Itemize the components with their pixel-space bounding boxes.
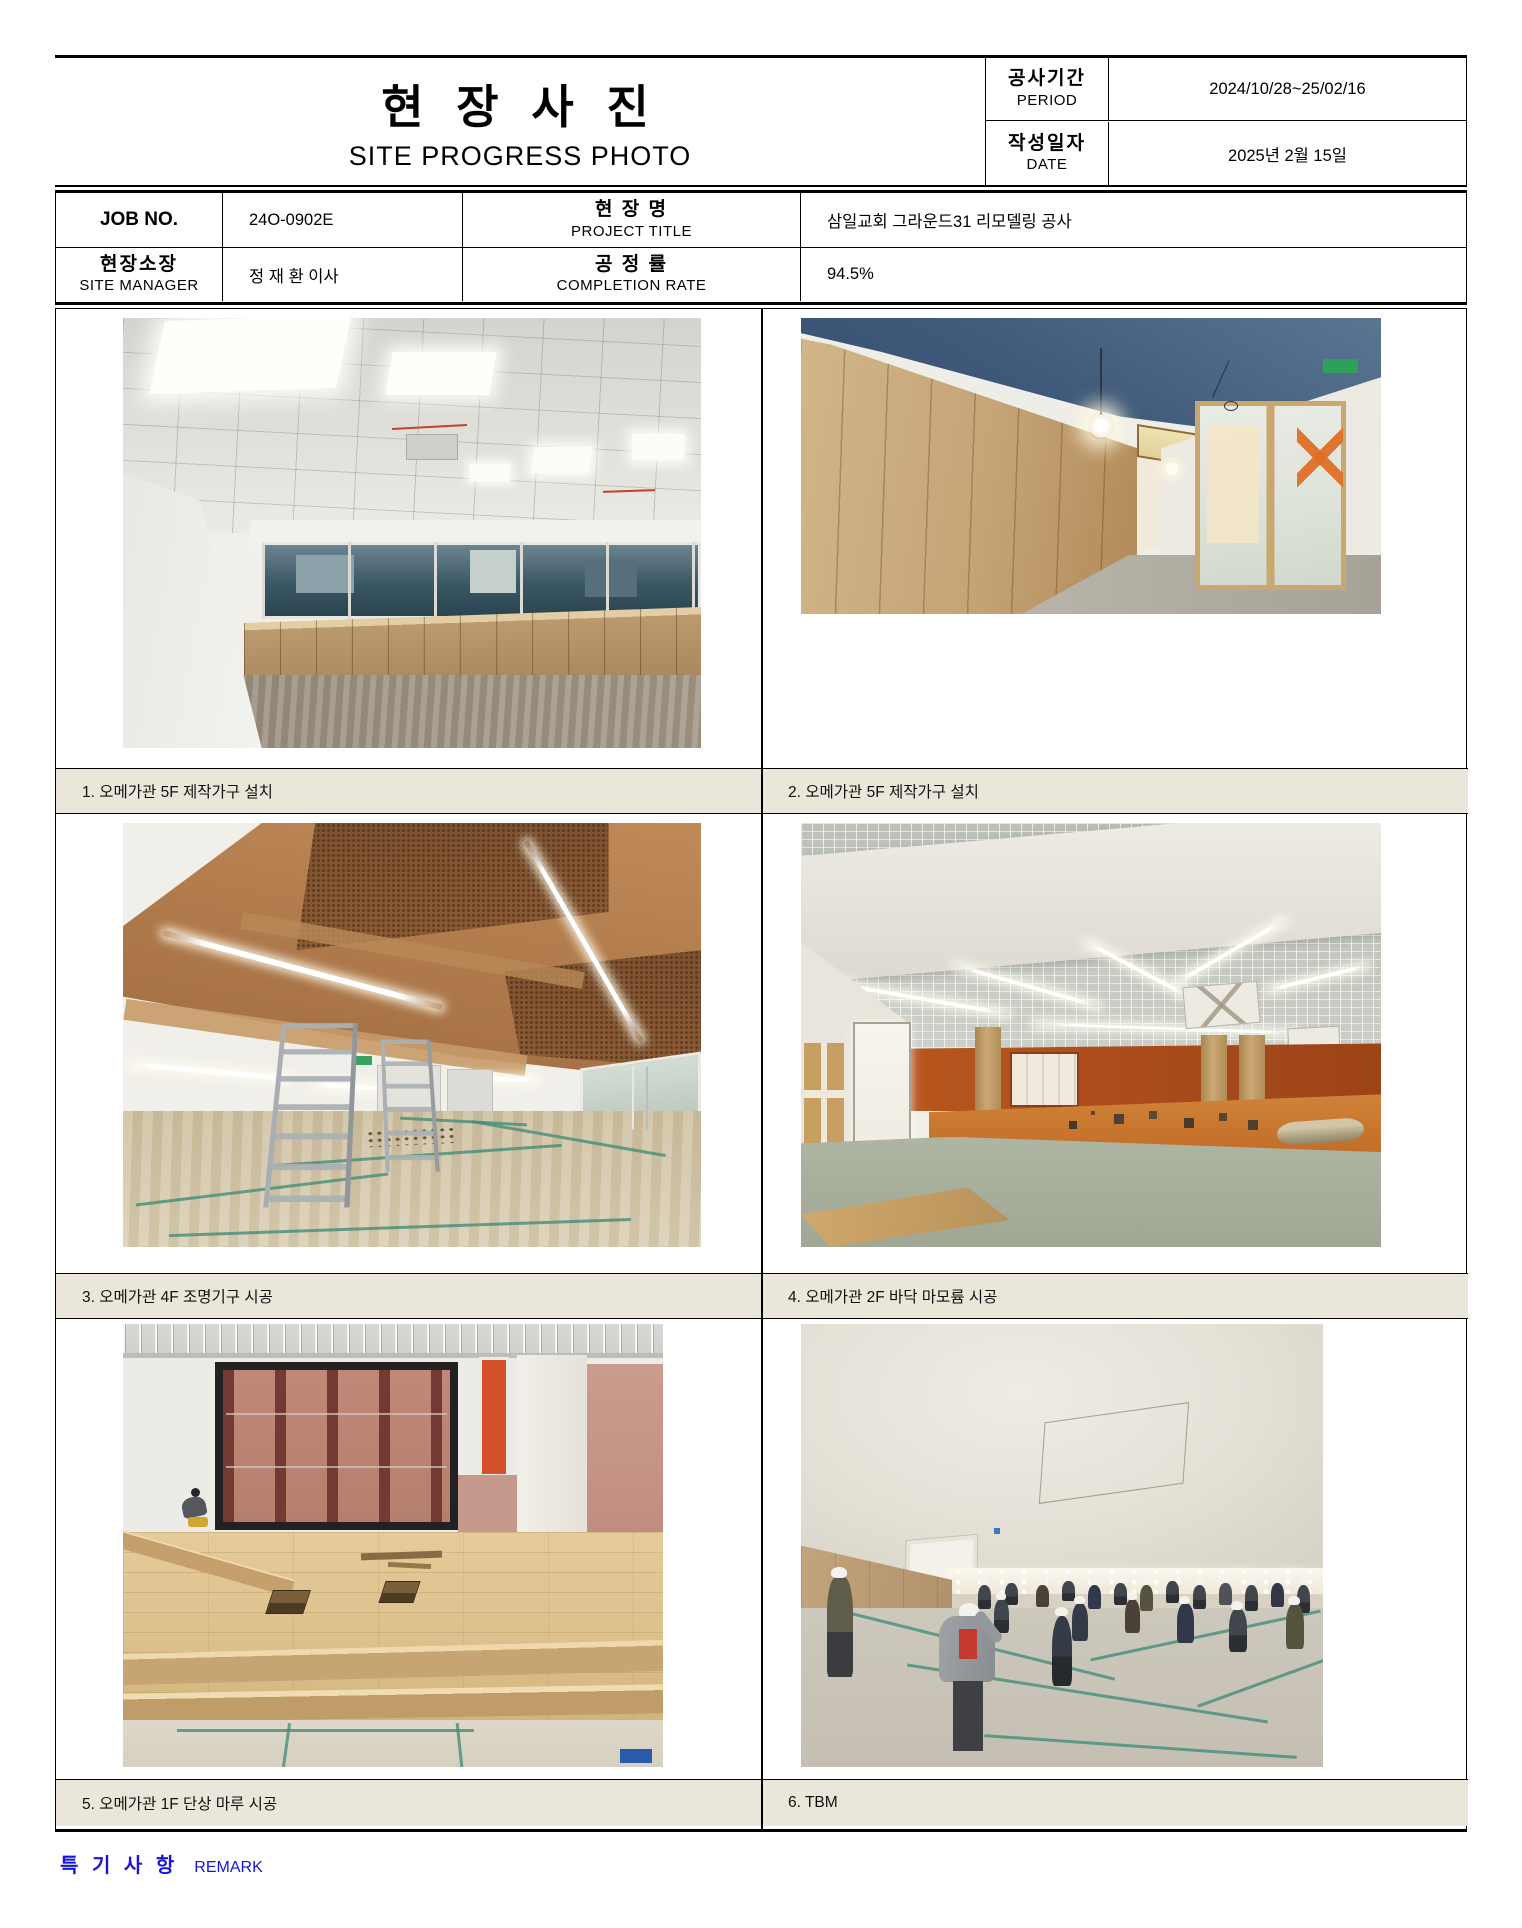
photo1-window-mullions [262,542,701,619]
photo-caption-3: 3. 오메가관 4F 조명기구 시공 [56,1274,762,1318]
worker-figure [1072,1603,1088,1641]
info-table: JOB NO. 24O-0902E 현 장 명 PROJECT TITLE 삼일… [55,193,1467,305]
hard-hat-icon [1055,1607,1068,1616]
photo-grid: 1. 오메가관 5F 제작가구 설치 2. 오메가관 5F 제작가구 설치 [55,308,1467,1832]
photo5-worker-body [181,1494,209,1519]
project-value: 삼일교회 그라운드31 리모델링 공사 [827,208,1072,232]
hard-hat-icon [1195,1578,1204,1585]
caption-text-4: 4. 오메가관 2F 바닥 마모륨 시공 [788,1285,997,1307]
photo-caption-2: 2. 오메가관 5F 제작가구 설치 [762,769,1468,813]
remark-label-ko: 특 기 사 항 [60,1849,178,1878]
title-block: 현 장 사 진 SITE PROGRESS PHOTO [55,60,985,183]
job-no-value: 24O-0902E [249,211,333,230]
photo2-warm-glow [1207,425,1259,543]
photo5-worker-legs [188,1517,208,1527]
hard-hat-icon [1168,1574,1177,1581]
header-double-rule-thin [55,185,1467,187]
worker-figure [1140,1585,1153,1611]
photo3-ladder-small [381,1039,440,1171]
worker-figure [1193,1585,1206,1609]
caption-text-6: 6. TBM [788,1794,838,1812]
photo2-lamp-cord [1100,348,1102,419]
photo5-framed-opening [215,1362,458,1530]
site-progress-photo-page: 현 장 사 진 SITE PROGRESS PHOTO 공사기간 PERIOD … [0,0,1522,1928]
hard-hat-icon [1127,1592,1137,1600]
photo-caption-1: 1. 오메가관 5F 제작가구 설치 [56,769,762,813]
photo-2 [801,318,1381,614]
foreman-figure [937,1603,1001,1763]
site-manager-label-en: SITE MANAGER [79,277,198,296]
completion-value: 94.5% [827,265,874,284]
photo1-light-panel [632,434,684,460]
hard-hat-icon [1090,1578,1099,1585]
completion-label-en: COMPLETION RATE [557,277,707,296]
photo6-blue-marker [994,1528,1000,1534]
photo-caption-5: 5. 오메가관 1F 단상 마루 시공 [56,1780,762,1826]
site-manager-value: 정 재 환 이사 [249,263,339,287]
photo5-blue-object [620,1749,652,1762]
worker-figure [827,1577,853,1677]
project-label-cell: 현 장 명 PROJECT TITLE [463,193,801,247]
photo3-tripod [631,1066,647,1129]
photo3-ladder-large [263,1023,358,1207]
photo4-wall-doors [1010,1052,1080,1107]
completion-label-ko: 공 정 률 [595,253,668,278]
hard-hat-icon [1007,1576,1016,1583]
worker-figure [1245,1585,1258,1611]
hard-hat-icon [1221,1576,1230,1583]
photo2-orange-x-mark [1297,419,1343,496]
info-row-1: JOB NO. 24O-0902E 현 장 명 PROJECT TITLE 삼일… [56,193,1466,248]
photo3-back-doors [447,1069,493,1116]
hard-hat-icon [1288,1596,1300,1605]
date-row: 작성일자 DATE 2025년 2월 15일 [986,122,1466,185]
remark-label-en: REMARK [194,1859,262,1877]
hard-hat-icon [1247,1578,1256,1585]
photo1-light-panel [385,352,497,395]
photo-caption-4: 4. 오메가관 2F 바닥 마모륨 시공 [762,1274,1468,1318]
remark-section: 특 기 사 항 REMARK [60,1849,263,1878]
photo4-debris [1091,1111,1095,1115]
completion-value-cell: 94.5% [801,248,1466,301]
hard-hat-icon [831,1567,847,1578]
period-value-cell: 2024/10/28~25/02/16 [1109,58,1466,120]
job-no-label-cell: JOB NO. [56,193,223,247]
project-label-ko: 현 장 명 [595,198,668,223]
worker-figure [1271,1583,1284,1607]
photo4-cardboard-patch [804,1043,845,1145]
job-no-label: JOB NO. [100,208,178,233]
site-manager-label-ko: 현장소장 [100,253,178,278]
caption-text-5: 5. 오메가관 1F 단상 마루 시공 [82,1792,277,1814]
date-label-ko: 작성일자 [1008,132,1086,157]
photo5-opening-rail [226,1466,447,1468]
photo-3 [123,823,701,1247]
date-label-cell: 작성일자 DATE [986,122,1109,185]
photo2-pendant-lamp [1088,413,1114,439]
worker-figure [1219,1583,1232,1605]
page-subtitle: SITE PROGRESS PHOTO [349,141,692,172]
worker-figure [1036,1585,1049,1607]
photo-5 [123,1324,663,1767]
foreman-red-panel [959,1629,977,1659]
photo5-floor-box [265,1590,311,1614]
period-date-table: 공사기간 PERIOD 2024/10/28~25/02/16 작성일자 DAT… [985,58,1467,185]
worker-figure [1052,1616,1072,1686]
date-value-cell: 2025년 2월 15일 [1109,122,1466,185]
worker-figure [1088,1585,1101,1609]
photo-caption-6: 6. TBM [762,1780,1468,1826]
photo-1 [123,318,701,748]
photo5-green-tape [177,1729,474,1732]
worker-figure [1114,1583,1127,1605]
hard-hat-icon [1231,1601,1243,1610]
project-label-en: PROJECT TITLE [571,223,692,242]
page-title: 현 장 사 진 [381,71,659,137]
project-value-cell: 삼일교회 그라운드31 리모델링 공사 [801,193,1466,247]
photo1-light-panel [532,447,593,473]
hard-hat-icon [1299,1578,1308,1585]
date-value: 2025년 2월 15일 [1228,142,1347,166]
photo1-light-panel [149,318,351,394]
foreman-pants [953,1681,983,1751]
worker-figure [1125,1599,1140,1633]
caption-text-3: 3. 오메가관 4F 조명기구 시공 [82,1285,273,1307]
site-manager-value-cell: 정 재 환 이사 [223,248,463,301]
hard-hat-icon [1074,1596,1085,1604]
photo3-led-strip [129,1062,291,1081]
worker-figure [1062,1581,1075,1601]
photo5-protected-floor [123,1720,663,1767]
caption-text-1: 1. 오메가관 5F 제작가구 설치 [82,780,273,802]
hard-hat-icon [996,1592,1006,1600]
period-value: 2024/10/28~25/02/16 [1209,80,1365,99]
hard-hat-icon [1273,1576,1282,1583]
completion-label-cell: 공 정 률 COMPLETION RATE [463,248,801,301]
photo4-ac-cassette [1182,981,1261,1030]
grid-column-divider [761,309,763,1829]
photo5-ceiling-strip [123,1324,663,1353]
hard-hat-icon [1179,1596,1190,1604]
worker-figure [1177,1603,1194,1643]
period-label-en: PERIOD [1017,92,1078,111]
hard-hat-icon [1038,1578,1047,1585]
photo2-exit-sign [1323,359,1358,372]
date-label-en: DATE [1027,156,1068,175]
photo3-exit-sign [354,1056,371,1064]
job-no-value-cell: 24O-0902E [223,193,463,247]
photo4-bright-doorway [853,1022,911,1149]
photo-6 [801,1324,1323,1767]
hard-hat-icon [1142,1578,1151,1585]
photo1-ac-vent [406,434,458,460]
worker-figure [1286,1603,1304,1649]
photo-4 [801,823,1381,1247]
photo5-opening-rail [226,1413,447,1415]
worker-figure [1229,1608,1247,1652]
photo1-light-panel [470,464,510,481]
caption-text-2: 2. 오메가관 5F 제작가구 설치 [788,780,979,802]
photo5-orange-slot [479,1357,509,1477]
photo5-floor-box [379,1581,421,1603]
hard-hat-icon [1116,1576,1125,1583]
info-row-2: 현장소장 SITE MANAGER 정 재 환 이사 공 정 률 COMPLET… [56,248,1466,301]
period-label-cell: 공사기간 PERIOD [986,58,1109,120]
worker-figure [1166,1581,1179,1603]
site-manager-label-cell: 현장소장 SITE MANAGER [56,248,223,301]
period-row: 공사기간 PERIOD 2024/10/28~25/02/16 [986,58,1466,121]
hard-hat-icon [1064,1574,1073,1581]
period-label-ko: 공사기간 [1008,67,1086,92]
